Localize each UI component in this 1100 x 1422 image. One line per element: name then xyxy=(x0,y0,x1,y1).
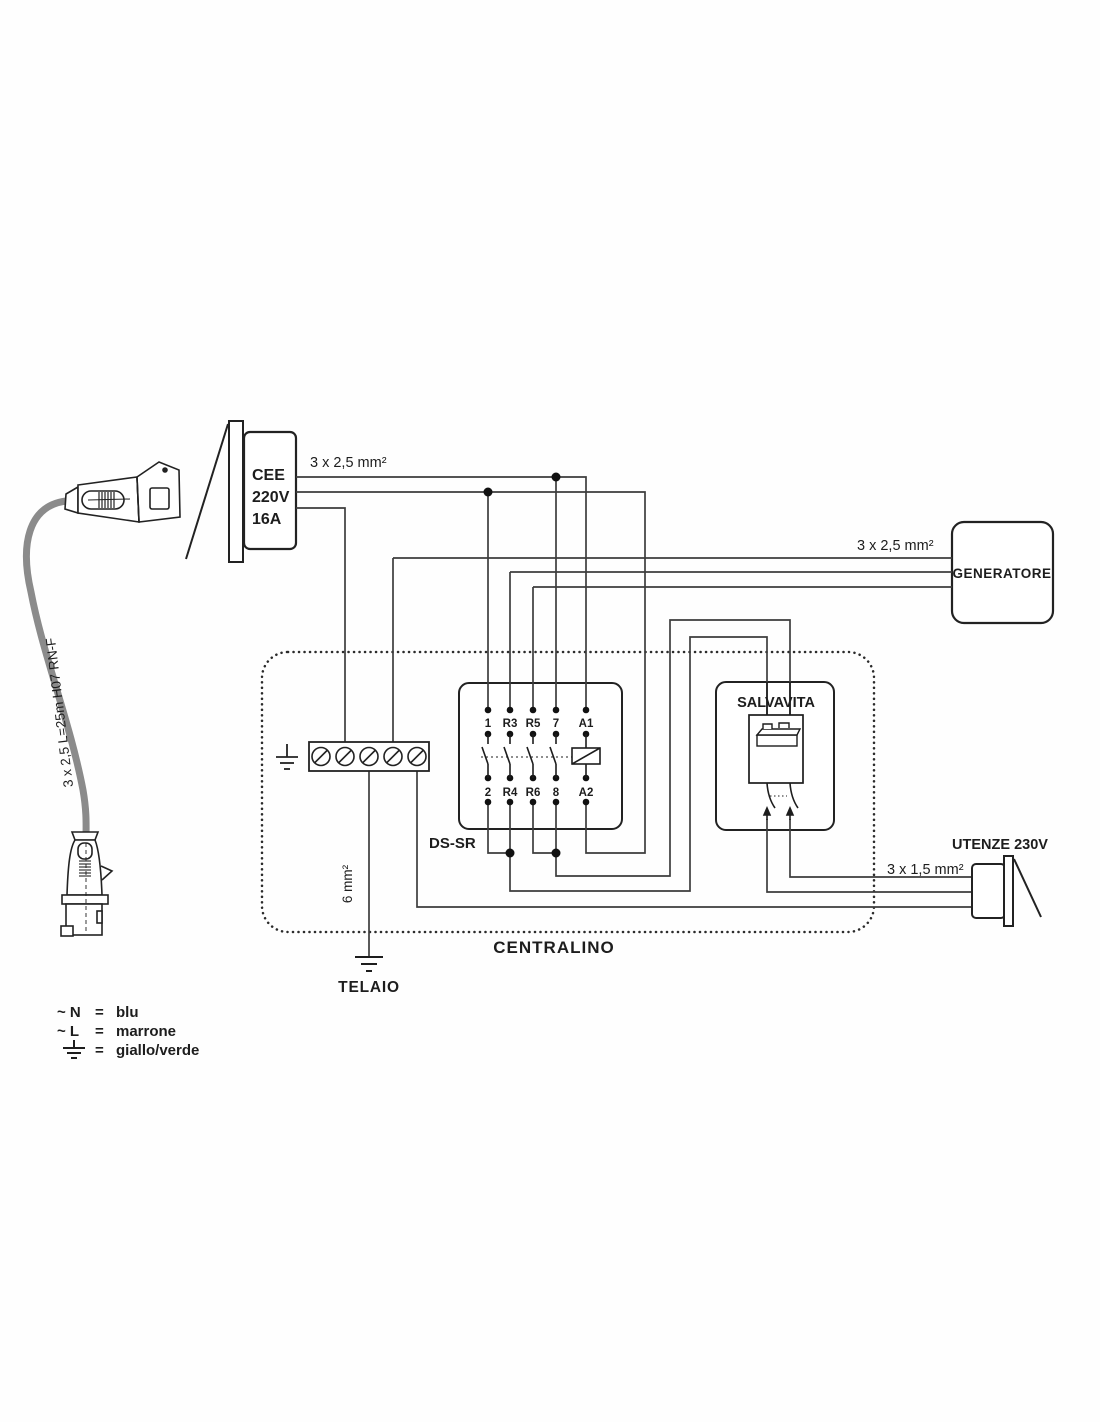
cable-socket-connector xyxy=(65,462,180,522)
connector-window xyxy=(150,488,169,509)
generator-cable-spec-label: 3 x 2,5 mm² xyxy=(857,538,934,554)
cee-label-3: 16A xyxy=(252,511,282,528)
flex-cable-assembly: 3 x 2,5 L=25m H07 RN-F xyxy=(26,462,180,936)
dssr-terminal-label: A1 xyxy=(579,718,594,730)
ground-cable-spec-label: 6 mm² xyxy=(340,864,355,903)
dssr-terminal-label: 7 xyxy=(553,718,559,730)
salvavita-inner-box xyxy=(749,715,803,783)
dssr-label: DS-SR xyxy=(429,835,476,852)
plug-side-tab xyxy=(101,866,112,880)
diagram-canvas: CENTRALINO xyxy=(0,0,1100,1422)
cee-label-1: CEE xyxy=(252,467,285,484)
dssr-terminal-label: R6 xyxy=(526,787,541,799)
plug-collar xyxy=(62,895,108,904)
legend-earth-ground-icon xyxy=(63,1040,85,1058)
block-earth-icon xyxy=(276,744,298,769)
terminal-block-group xyxy=(276,742,429,771)
utenze-label: UTENZE 230V xyxy=(952,837,1048,853)
junction-dot xyxy=(552,849,561,858)
telaio-label: TELAIO xyxy=(338,979,400,996)
legend-eq: = xyxy=(95,1004,104,1021)
plug-top-flange xyxy=(72,832,98,840)
cable-plug-connector xyxy=(61,832,112,936)
utenze-mounting-plate xyxy=(1004,856,1013,926)
cee-cover-line xyxy=(186,424,228,559)
legend-value: marrone xyxy=(116,1023,176,1040)
legend-eq: = xyxy=(95,1042,104,1059)
centralino-label: CENTRALINO xyxy=(493,938,614,957)
dssr-terminal-label: R3 xyxy=(503,718,518,730)
plug-slot xyxy=(97,911,102,923)
generator-label: GENERATORE xyxy=(952,566,1051,581)
junction-dot xyxy=(484,488,493,497)
dssr-terminal-label: 1 xyxy=(485,718,492,730)
junction-dot xyxy=(506,849,515,858)
dssr-terminal-label: R4 xyxy=(503,787,518,799)
legend-symbol: ~ N xyxy=(57,1004,81,1021)
wire-cee-pe xyxy=(296,508,345,742)
junction-dot xyxy=(552,473,561,482)
utenze-cable-spec-label: 3 x 1,5 mm² xyxy=(887,862,964,878)
connector-pin-dot xyxy=(163,468,167,472)
supply-cable-spec-label: 3 x 2,5 mm² xyxy=(310,455,387,471)
dssr-terminal-label: 2 xyxy=(485,787,491,799)
legend: ~ N = blu ~ L = marrone = giallo/verde xyxy=(57,1004,199,1059)
wire-cee-L xyxy=(296,477,586,710)
utenze-socket-body xyxy=(972,864,1005,918)
legend-value: giallo/verde xyxy=(116,1042,199,1059)
cee-label-2: 220V xyxy=(252,489,290,506)
flex-cable-spec-label: 3 x 2,5 L=25m H07 RN-F xyxy=(43,637,76,788)
salvavita-label: SALVAVITA xyxy=(737,695,815,711)
plug-foot xyxy=(61,926,73,936)
dssr-terminal-label: R5 xyxy=(526,718,541,730)
legend-value: blu xyxy=(116,1004,139,1021)
telaio-earth-icon xyxy=(355,957,383,971)
legend-symbol: ~ L xyxy=(57,1023,79,1040)
dssr-terminal-label: A2 xyxy=(579,787,594,799)
cee-mounting-plate xyxy=(229,421,243,562)
utenze-group: UTENZE 230V 3 x 1,5 mm² xyxy=(887,837,1048,926)
wiring-diagram-page: { "labels": { "supply_cable_spec": "3 x … xyxy=(0,0,1100,1422)
connector-gland xyxy=(65,487,78,513)
utenze-cover-line xyxy=(1014,859,1041,917)
dssr-terminal-label: 8 xyxy=(553,787,560,799)
utenze-socket-icon xyxy=(972,856,1041,926)
legend-eq: = xyxy=(95,1023,104,1040)
